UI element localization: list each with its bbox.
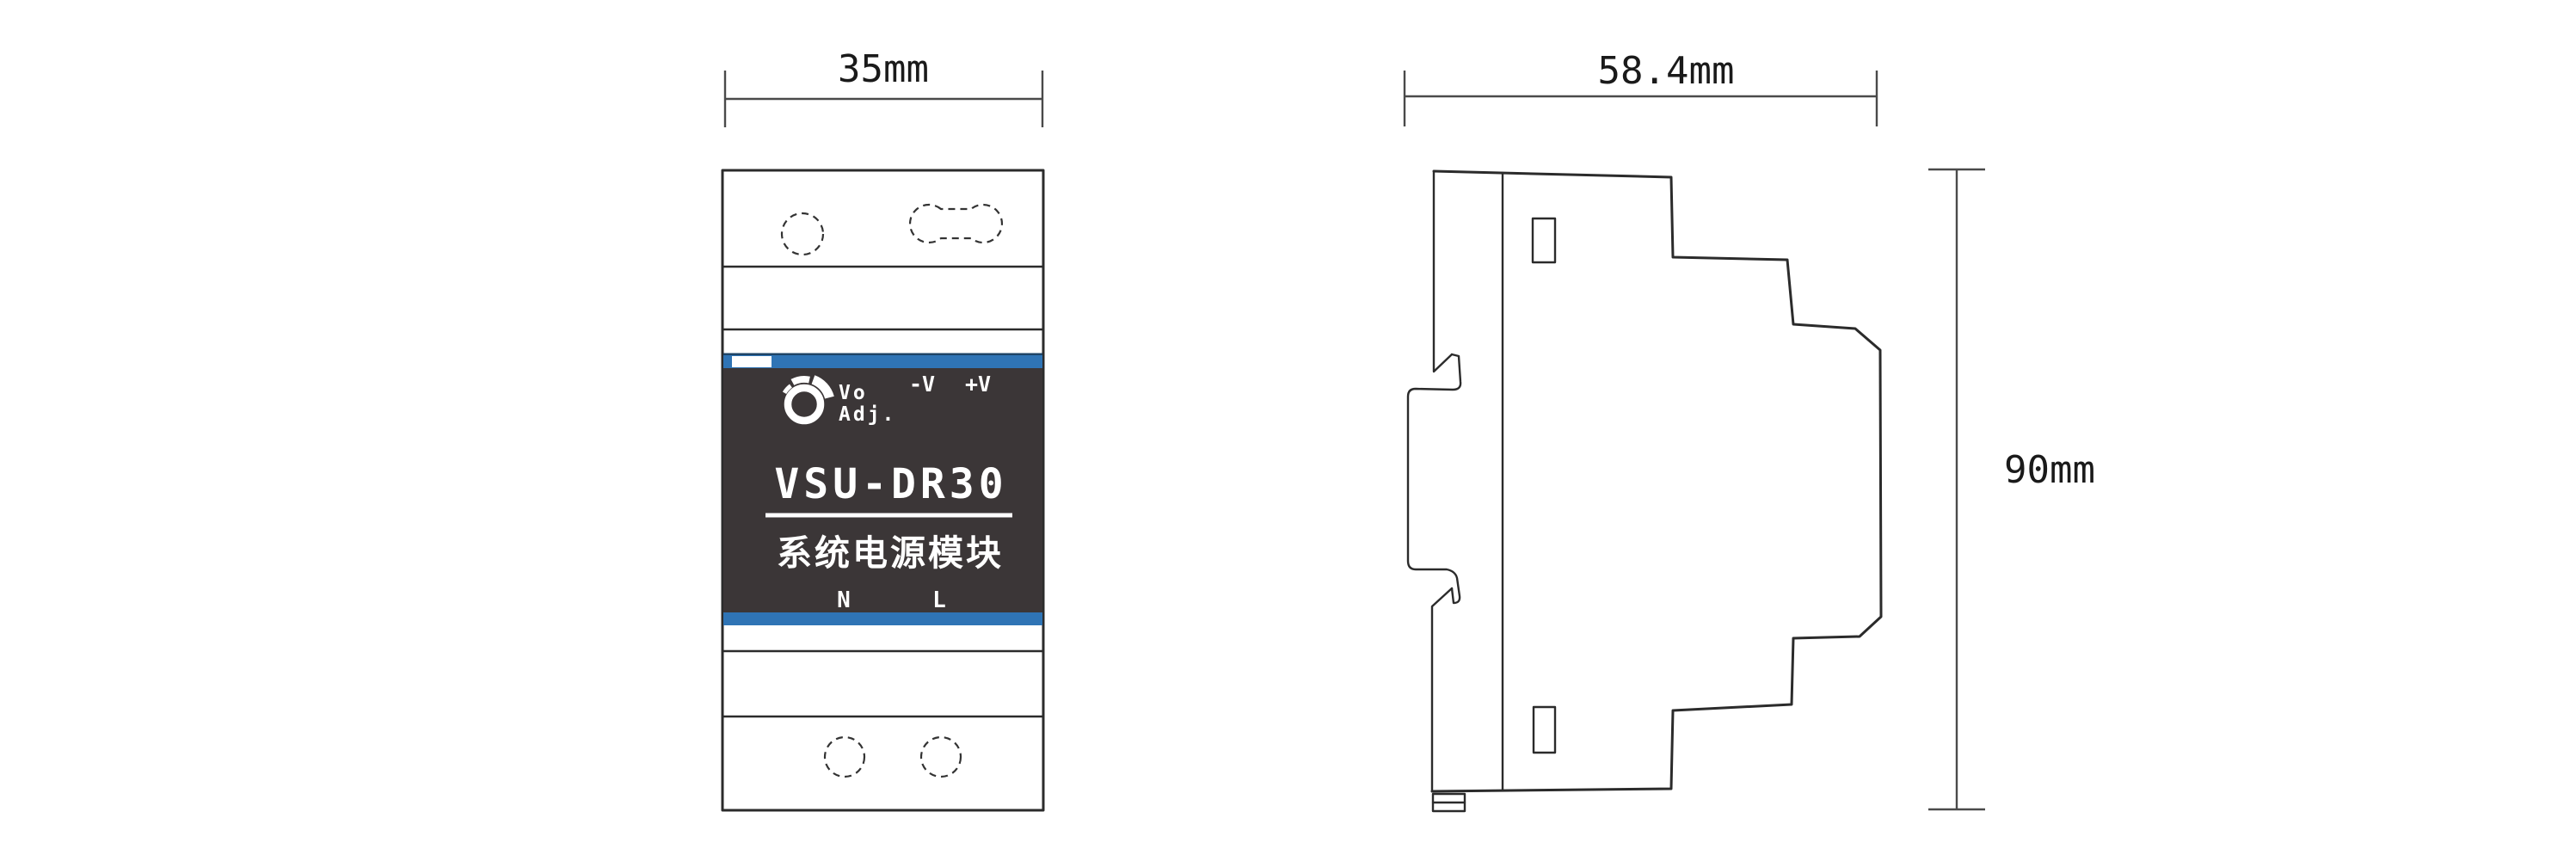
side-rear-edge-bottom — [1432, 588, 1452, 791]
dimension-drawing-canvas: Vo Adj. -V +V VSU-DR30 系统电源模块 N L — [0, 0, 2576, 861]
wire-hole-left — [825, 737, 864, 777]
drawing-svg: Vo Adj. -V +V VSU-DR30 系统电源模块 N L — [0, 0, 2576, 861]
dimension-side-depth: 58.4mm — [1405, 49, 1877, 126]
side-body-outline — [1432, 171, 1881, 791]
dim90-label: 90mm — [2004, 448, 2095, 492]
bottom-terminal-label-n: N — [837, 587, 851, 613]
blue-stripe-bottom — [723, 612, 1042, 625]
panel-subtitle: 系统电源模块 — [777, 532, 1004, 574]
bottom-terminal-label-l: L — [932, 587, 946, 613]
knob-label-line1: Vo — [839, 382, 868, 404]
din-rail-clip — [1408, 354, 1460, 603]
mounting-hole-round — [782, 213, 823, 255]
dimension-side-height: 90mm — [1928, 169, 2095, 809]
vent-slot-top — [1533, 218, 1555, 262]
model-number: VSU-DR30 — [774, 460, 1007, 508]
front-view: Vo Adj. -V +V VSU-DR30 系统电源模块 N L — [722, 170, 1043, 810]
side-view — [1408, 171, 1881, 811]
mounting-hole-slotted — [910, 205, 1002, 243]
knob-label-line2: Adj. — [839, 403, 896, 426]
blue-stripe-notch — [732, 356, 772, 367]
terminal-label-neg: -V — [909, 372, 935, 397]
dimension-front-width: 35mm — [725, 47, 1042, 127]
terminal-label-pos: +V — [965, 372, 991, 397]
dim58-label: 58.4mm — [1598, 49, 1735, 93]
vent-slot-bottom — [1534, 707, 1555, 753]
bottom-foot-tab — [1433, 794, 1465, 811]
wire-hole-right — [921, 737, 961, 777]
side-rear-edge-top — [1434, 171, 1452, 372]
dim35-label: 35mm — [838, 47, 929, 91]
